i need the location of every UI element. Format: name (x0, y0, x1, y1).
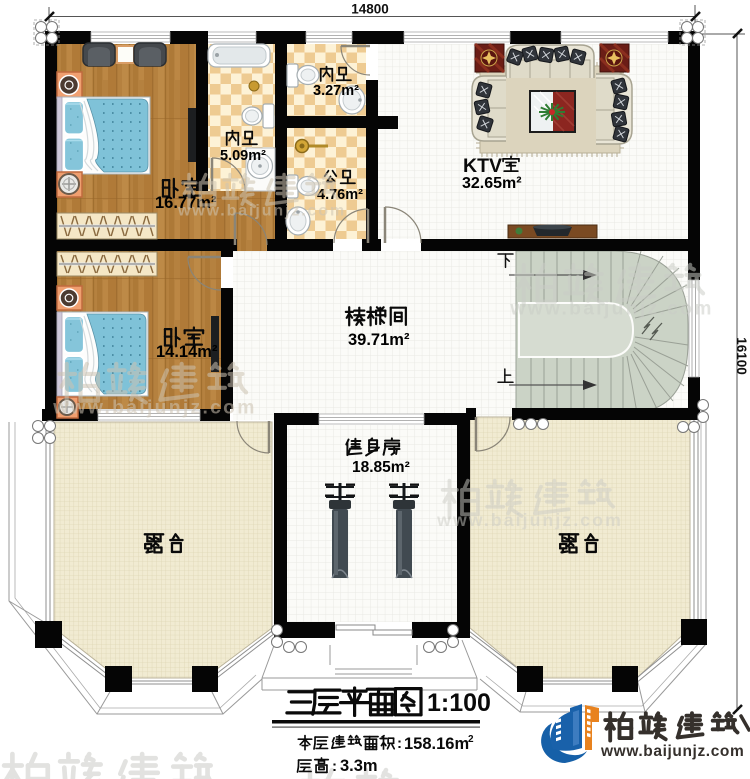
svg-text:18.85m²: 18.85m² (352, 459, 410, 476)
svg-text:www.baijunjz.com: www.baijunjz.com (509, 299, 713, 320)
svg-text:158.16m: 158.16m (404, 735, 469, 753)
svg-text::: : (332, 758, 337, 775)
svg-text:32.65m²: 32.65m² (462, 175, 522, 192)
svg-text:3.3m: 3.3m (340, 757, 378, 775)
svg-text:16100: 16100 (734, 337, 749, 375)
svg-text::: : (397, 735, 402, 752)
svg-text:www.baijunjz.com: www.baijunjz.com (52, 398, 256, 419)
svg-text:2: 2 (468, 734, 474, 745)
svg-text:39.71m²: 39.71m² (348, 331, 410, 349)
svg-text:www.baijunjz.com: www.baijunjz.com (436, 510, 623, 530)
svg-text:14800: 14800 (351, 2, 389, 17)
svg-text:4.76m²: 4.76m² (317, 187, 363, 203)
svg-text:3.27m²: 3.27m² (313, 83, 359, 99)
svg-text:5.09m²: 5.09m² (220, 148, 266, 164)
svg-text:14.14m²: 14.14m² (156, 343, 218, 361)
svg-text:KTV: KTV (463, 155, 502, 177)
svg-text:www.baijunjz.com: www.baijunjz.com (177, 203, 346, 220)
svg-text:1:100: 1:100 (427, 689, 491, 717)
svg-text:www.baijunjz.com: www.baijunjz.com (600, 743, 744, 760)
